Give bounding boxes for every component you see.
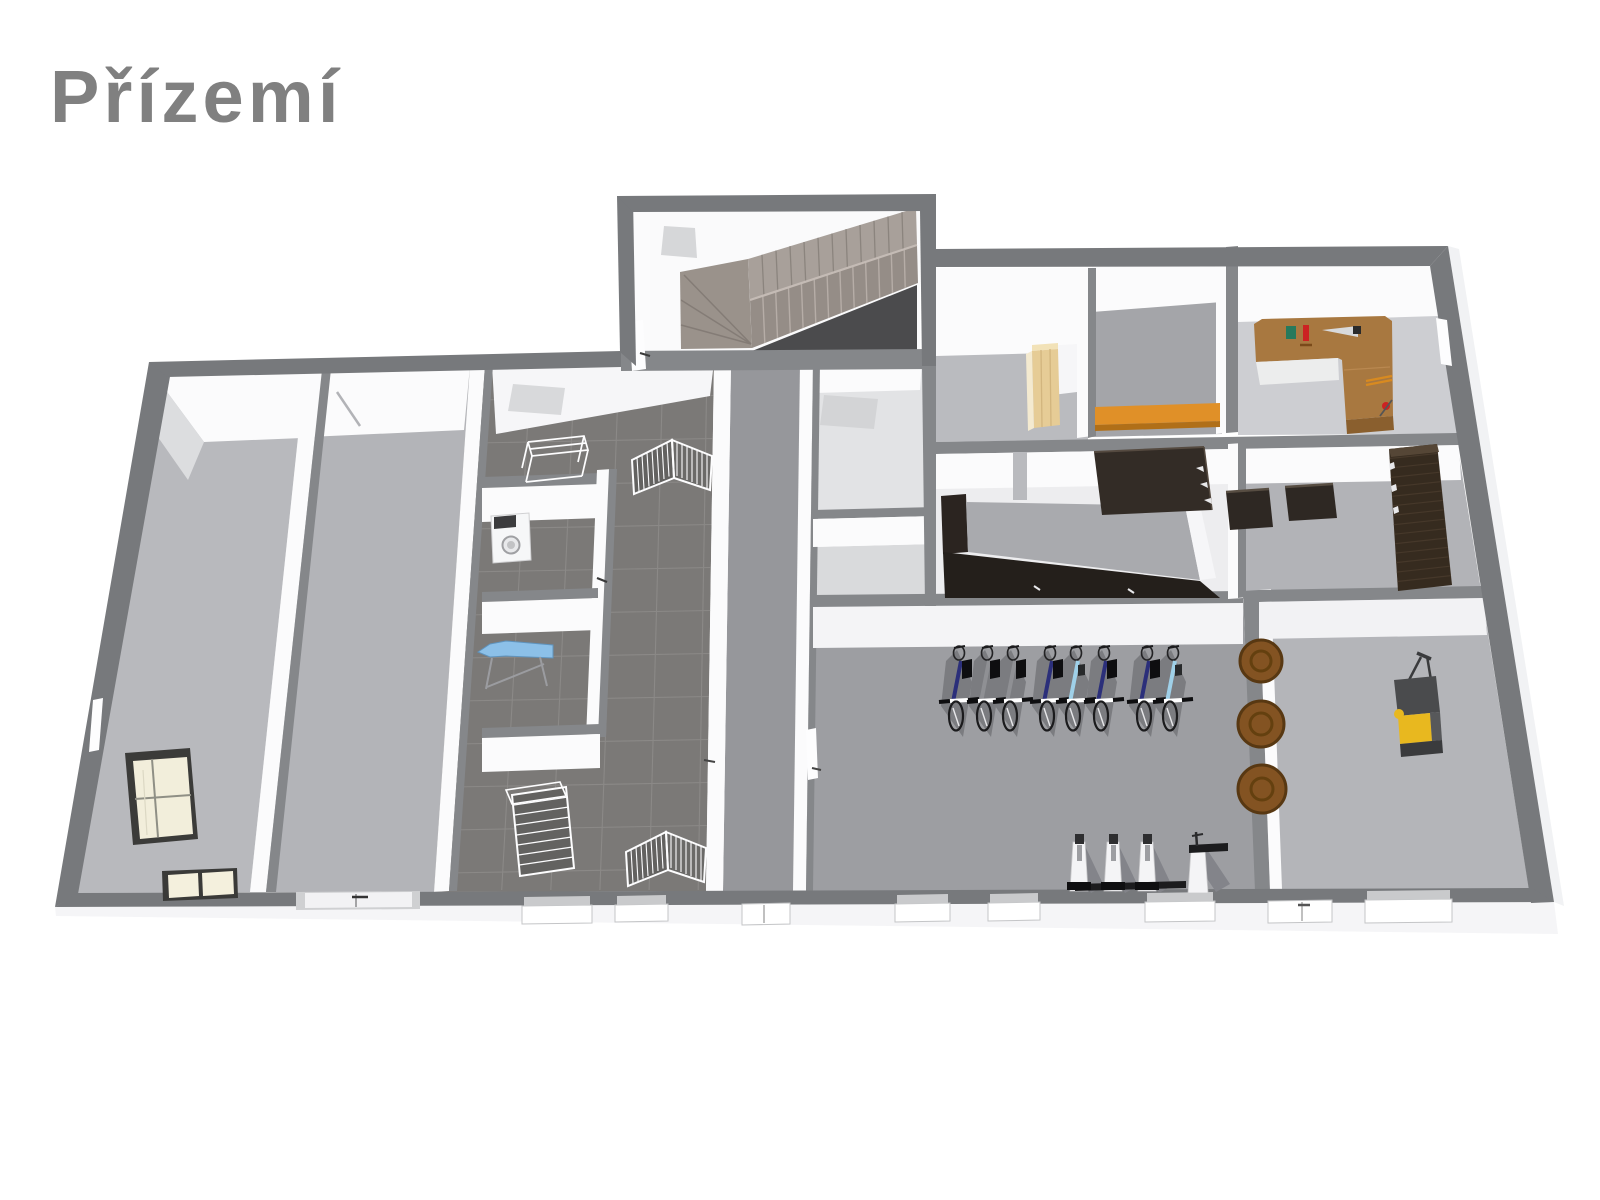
svg-text:Přízemí: Přízemí	[50, 55, 343, 138]
